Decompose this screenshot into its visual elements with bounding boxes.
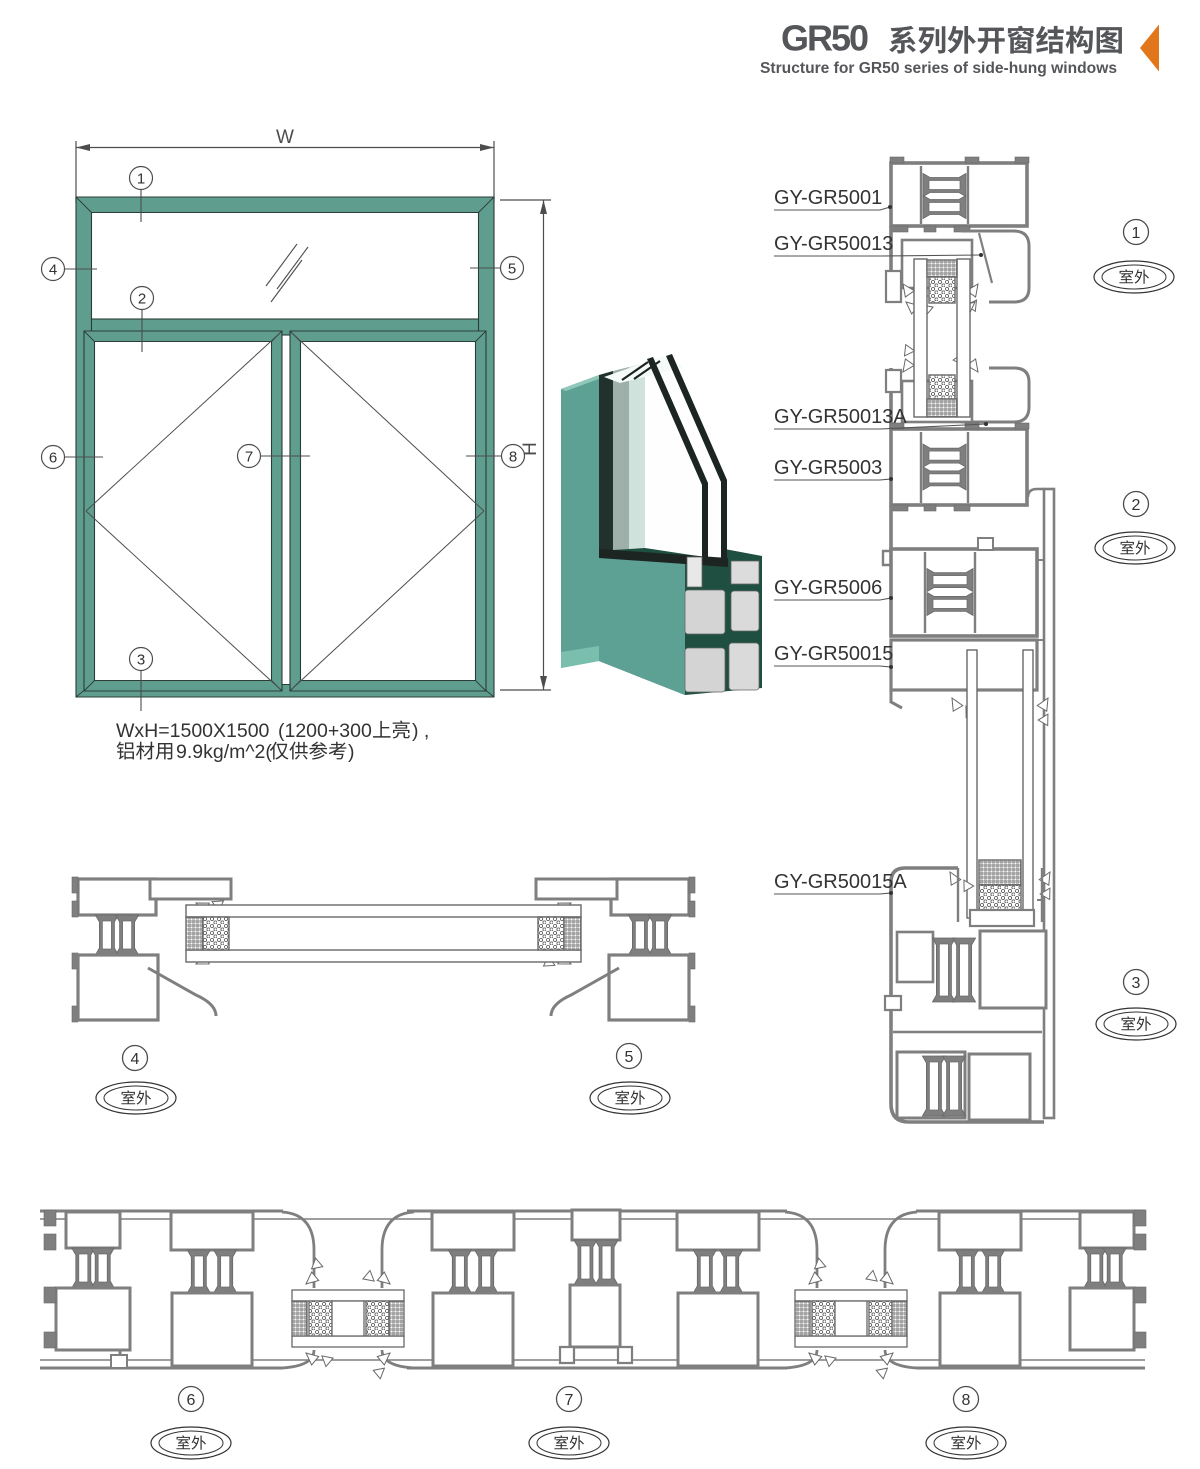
svg-text:) ,: ) , <box>412 720 429 742</box>
svg-text:3: 3 <box>137 652 145 669</box>
svg-text:GY-GR5006: GY-GR5006 <box>774 577 882 599</box>
svg-text:): ) <box>348 741 355 763</box>
svg-text:9.9kg/m^2(: 9.9kg/m^2( <box>176 741 272 763</box>
svg-text:5: 5 <box>625 1049 634 1066</box>
svg-text:4: 4 <box>49 262 57 279</box>
svg-text:8: 8 <box>509 449 517 466</box>
svg-text:2: 2 <box>1132 497 1141 514</box>
svg-text:GY-GR50015A: GY-GR50015A <box>774 871 907 893</box>
svg-text:(1200+300: (1200+300 <box>278 720 372 742</box>
svg-text:WxH=1500X1500: WxH=1500X1500 <box>116 720 270 742</box>
svg-text:7: 7 <box>245 449 253 466</box>
svg-text:W: W <box>276 127 294 148</box>
svg-text:1: 1 <box>1132 225 1141 242</box>
svg-text:GY-GR50015: GY-GR50015 <box>774 643 893 665</box>
svg-text:GY-GR50013: GY-GR50013 <box>774 233 893 255</box>
svg-text:Structure for GR50 series of s: Structure for GR50 series of side-hung w… <box>760 60 1117 77</box>
svg-text:7: 7 <box>565 1392 574 1409</box>
svg-text:3: 3 <box>1132 975 1141 992</box>
svg-text:GY-GR5001: GY-GR5001 <box>774 187 882 209</box>
svg-text:4: 4 <box>131 1051 140 1068</box>
svg-text:GY-GR50013A: GY-GR50013A <box>774 406 907 428</box>
svg-text:6: 6 <box>187 1392 196 1409</box>
svg-text:6: 6 <box>49 450 57 467</box>
svg-text:2: 2 <box>138 291 146 308</box>
svg-text:GR50: GR50 <box>781 18 868 59</box>
svg-text:5: 5 <box>508 261 516 278</box>
svg-text:1: 1 <box>137 171 145 188</box>
svg-text:GY-GR5003: GY-GR5003 <box>774 457 882 479</box>
svg-text:8: 8 <box>962 1392 971 1409</box>
